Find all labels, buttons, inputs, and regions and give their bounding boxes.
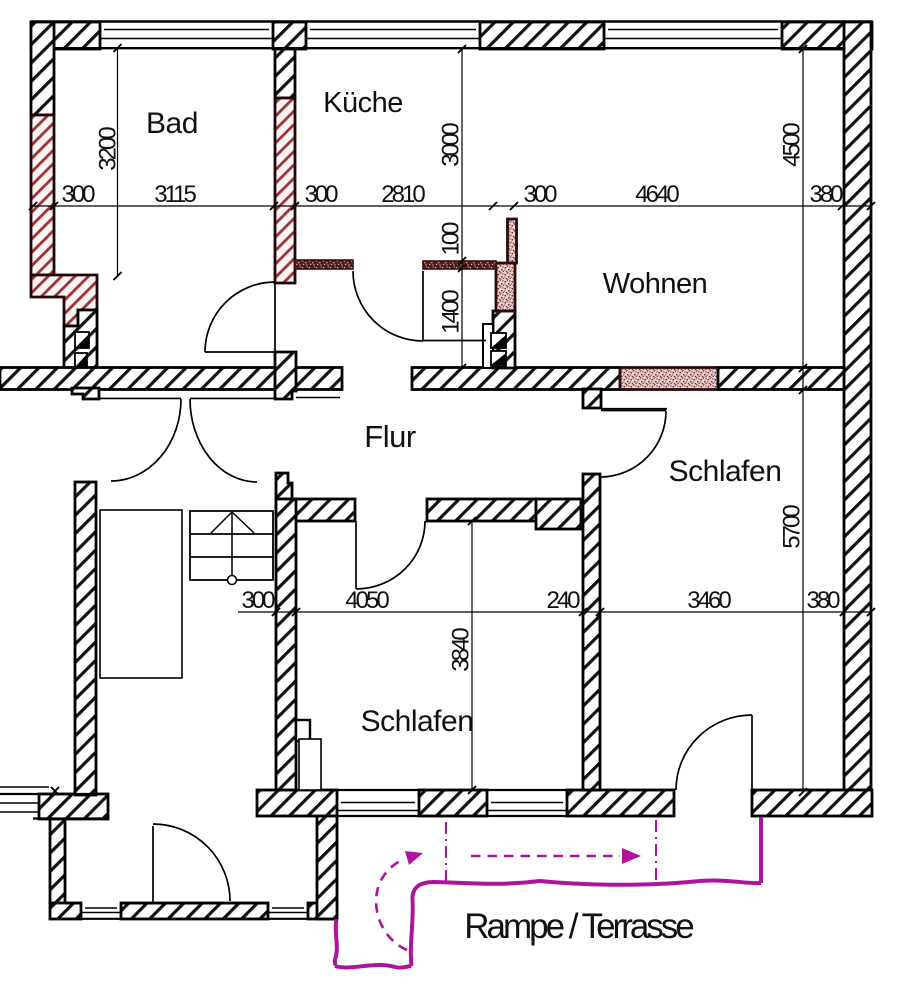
svg-text:4640: 4640 xyxy=(635,181,679,208)
svg-text:1400: 1400 xyxy=(438,290,465,334)
svg-text:Wohnen: Wohnen xyxy=(603,268,708,300)
svg-text:100: 100 xyxy=(438,222,465,256)
svg-text:380: 380 xyxy=(806,587,840,614)
svg-text:3840: 3840 xyxy=(448,628,475,672)
svg-text:300: 300 xyxy=(523,181,557,208)
svg-text:Schlafen: Schlafen xyxy=(669,455,782,488)
svg-text:5700: 5700 xyxy=(779,505,806,549)
svg-text:Schlafen: Schlafen xyxy=(361,705,474,738)
svg-text:300: 300 xyxy=(241,587,275,614)
svg-text:4500: 4500 xyxy=(779,123,806,167)
svg-text:3460: 3460 xyxy=(687,587,731,614)
svg-text:Bad: Bad xyxy=(146,107,198,140)
svg-text:300: 300 xyxy=(61,181,95,208)
svg-text:3200: 3200 xyxy=(95,127,122,171)
svg-text:4050: 4050 xyxy=(345,587,389,614)
svg-text:240: 240 xyxy=(546,587,580,614)
svg-text:Flur: Flur xyxy=(364,419,416,454)
svg-text:3000: 3000 xyxy=(438,123,465,167)
svg-text:2810: 2810 xyxy=(381,181,425,208)
svg-text:3115: 3115 xyxy=(154,181,196,208)
svg-text:380: 380 xyxy=(809,181,843,208)
svg-text:Küche: Küche xyxy=(323,87,403,119)
svg-text:Rampe / Terrasse: Rampe / Terrasse xyxy=(464,907,693,946)
svg-text:300: 300 xyxy=(304,181,338,208)
